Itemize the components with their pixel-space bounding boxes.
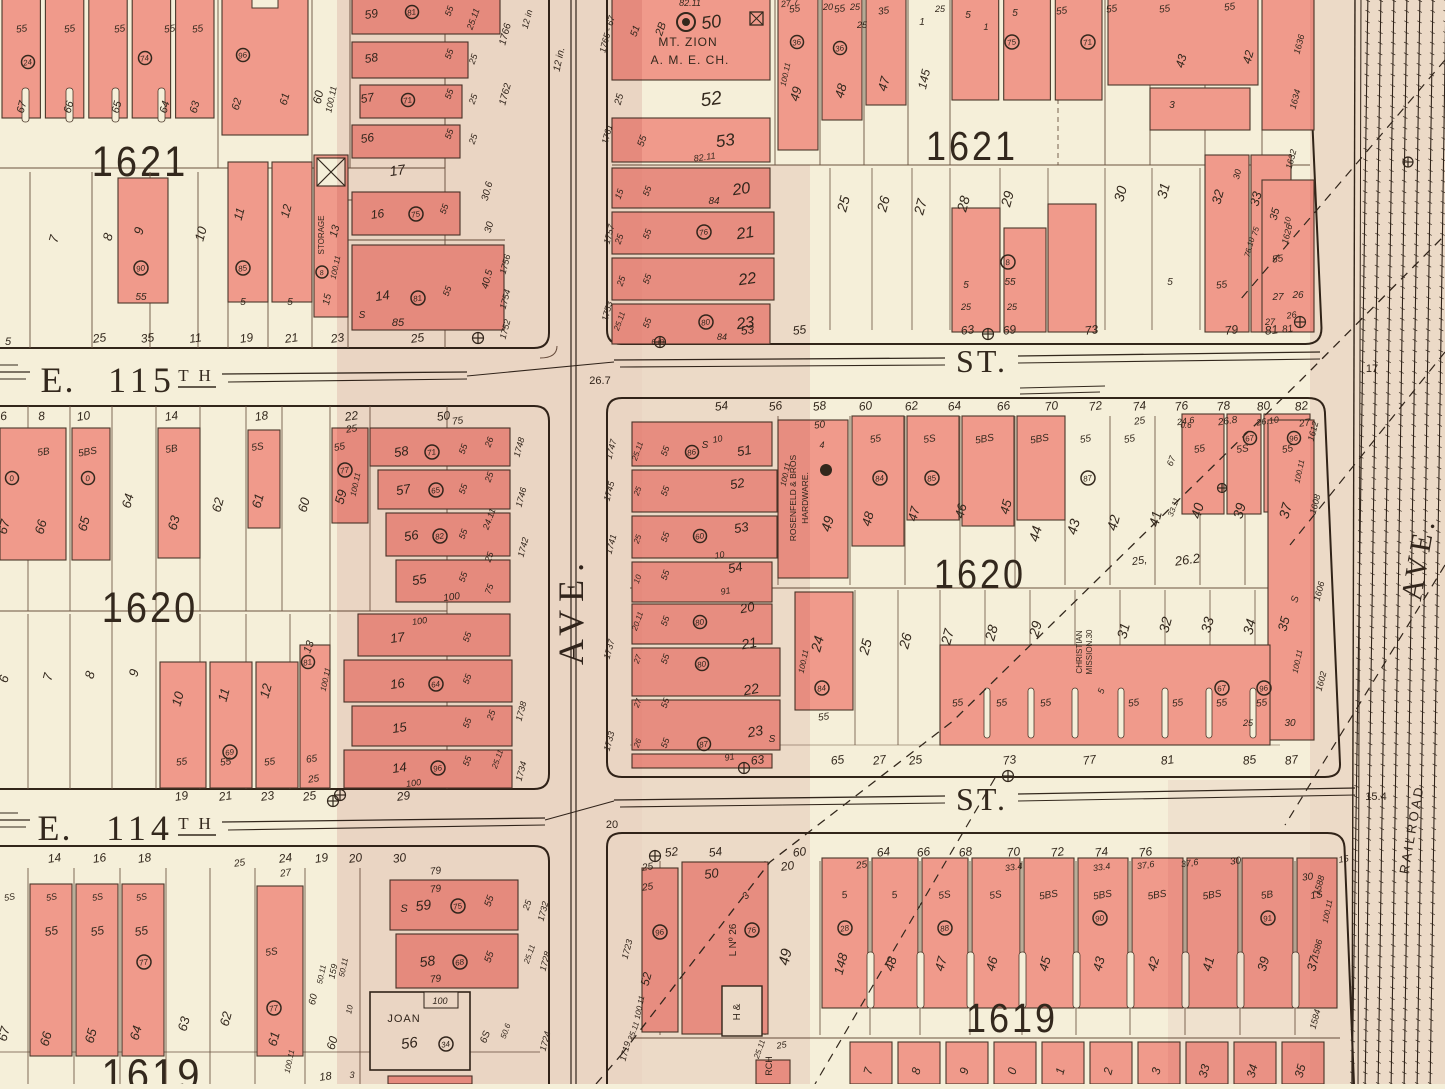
svg-text:58: 58 [812, 398, 827, 414]
svg-text:25: 25 [1242, 718, 1254, 728]
svg-text:16: 16 [92, 850, 107, 866]
svg-text:55: 55 [175, 756, 188, 769]
svg-text:62: 62 [904, 398, 919, 414]
svg-text:25: 25 [1006, 302, 1018, 312]
svg-text:74: 74 [1132, 398, 1147, 414]
svg-text:19: 19 [314, 850, 329, 866]
svg-text:5: 5 [5, 336, 12, 348]
svg-text:27: 27 [1264, 317, 1276, 327]
svg-text:1619: 1619 [966, 996, 1058, 1041]
svg-text:50: 50 [813, 419, 826, 432]
svg-text:5: 5 [963, 280, 969, 291]
svg-text:A. M. E. CH.: A. M. E. CH. [651, 53, 730, 67]
svg-text:5B: 5B [165, 443, 179, 456]
svg-text:81: 81 [1160, 752, 1175, 768]
svg-text:50: 50 [700, 11, 723, 34]
svg-text:ST.: ST. [956, 343, 1008, 379]
svg-text:30: 30 [1284, 718, 1296, 729]
svg-text:73: 73 [1002, 752, 1017, 768]
svg-text:25: 25 [306, 773, 320, 786]
svg-text:1: 1 [919, 17, 925, 28]
svg-text:55: 55 [15, 23, 28, 36]
svg-text:35: 35 [140, 330, 155, 346]
svg-text:115: 115 [108, 360, 176, 400]
svg-text:25: 25 [854, 859, 868, 872]
svg-text:55: 55 [90, 923, 106, 939]
svg-text:72: 72 [1088, 398, 1103, 414]
svg-text:25: 25 [849, 2, 861, 12]
svg-text:64: 64 [947, 398, 962, 414]
svg-text:4: 4 [819, 440, 824, 450]
svg-text:5S: 5S [938, 889, 952, 902]
svg-text:55: 55 [163, 23, 176, 36]
svg-text:52: 52 [699, 88, 723, 112]
svg-text:53: 53 [715, 130, 737, 152]
svg-text:19: 19 [174, 788, 189, 804]
svg-text:25: 25 [960, 302, 972, 312]
svg-text:25: 25 [856, 20, 868, 30]
svg-text:1620: 1620 [102, 583, 199, 632]
svg-text:24: 24 [277, 850, 293, 866]
svg-text:74: 74 [1094, 844, 1109, 860]
svg-text:76: 76 [1174, 398, 1189, 414]
svg-text:5S: 5S [91, 891, 104, 903]
svg-text:23: 23 [259, 788, 275, 804]
svg-text:11: 11 [188, 330, 202, 346]
svg-text:55: 55 [1158, 3, 1171, 16]
svg-text:1620: 1620 [934, 552, 1026, 597]
svg-text:55: 55 [113, 23, 126, 36]
svg-text:55: 55 [833, 3, 846, 16]
svg-text:55: 55 [1171, 697, 1184, 710]
svg-text:66: 66 [996, 398, 1011, 414]
svg-text:55: 55 [1055, 5, 1068, 18]
svg-text:1621: 1621 [926, 124, 1018, 169]
svg-text:55: 55 [63, 23, 76, 36]
svg-text:10: 10 [76, 408, 91, 424]
svg-text:5S: 5S [923, 433, 937, 446]
svg-text:55: 55 [134, 923, 150, 939]
svg-text:25,: 25, [1130, 554, 1148, 568]
svg-text:63: 63 [960, 322, 975, 338]
svg-text:27: 27 [278, 867, 292, 880]
svg-text:5S: 5S [265, 946, 279, 959]
svg-text:55: 55 [263, 756, 276, 769]
svg-text:18: 18 [254, 408, 269, 424]
svg-text:81: 81 [302, 657, 312, 667]
svg-text:55: 55 [1223, 1, 1236, 14]
svg-text:55: 55 [191, 23, 204, 36]
svg-text:64: 64 [876, 844, 891, 860]
svg-text:5S: 5S [251, 441, 265, 454]
svg-text:21: 21 [283, 330, 299, 346]
svg-text:70: 70 [1044, 398, 1059, 414]
svg-text:69: 69 [1002, 322, 1017, 338]
svg-text:60: 60 [858, 398, 873, 414]
svg-text:25: 25 [301, 788, 317, 804]
svg-text:STORAGE: STORAGE [317, 216, 326, 255]
svg-text:25: 25 [934, 4, 946, 14]
svg-text:25: 25 [232, 857, 246, 870]
svg-text:27: 27 [1271, 292, 1284, 303]
svg-text:114: 114 [106, 808, 174, 848]
svg-text:14: 14 [164, 408, 179, 424]
svg-text:55: 55 [1039, 697, 1052, 710]
svg-text:5S: 5S [3, 891, 16, 903]
svg-text:35: 35 [877, 5, 890, 18]
svg-text:65: 65 [305, 753, 318, 766]
svg-text:1619: 1619 [102, 1050, 203, 1084]
svg-text:5: 5 [240, 297, 246, 308]
svg-text:73: 73 [1084, 322, 1099, 338]
svg-text:20: 20 [822, 2, 833, 12]
svg-text:55: 55 [817, 711, 830, 724]
svg-text:85: 85 [1242, 752, 1257, 768]
svg-text:5: 5 [1167, 277, 1173, 288]
svg-text:0.6: 0.6 [1180, 421, 1192, 430]
svg-text:5: 5 [965, 10, 971, 21]
svg-text:55: 55 [1105, 3, 1118, 16]
svg-text:E.: E. [41, 360, 76, 400]
svg-text:25: 25 [1132, 415, 1146, 428]
svg-text:55: 55 [1215, 279, 1228, 292]
svg-text:55: 55 [44, 923, 60, 939]
svg-text:5: 5 [1012, 8, 1018, 19]
svg-text:66: 66 [916, 844, 931, 860]
svg-text:55: 55 [1215, 697, 1228, 710]
svg-text:21: 21 [217, 788, 233, 804]
svg-text:81: 81 [1281, 323, 1294, 335]
svg-text:3: 3 [1169, 100, 1175, 111]
svg-text:82.11: 82.11 [679, 0, 701, 8]
svg-text:5S: 5S [1236, 443, 1250, 456]
svg-text:71: 71 [1082, 37, 1092, 47]
svg-text:1: 1 [983, 22, 988, 32]
svg-text:MISSION.30: MISSION.30 [1085, 629, 1094, 674]
svg-text:72: 72 [1050, 844, 1065, 860]
svg-text:5S: 5S [45, 891, 58, 903]
svg-text:25: 25 [91, 330, 107, 346]
svg-text:5S: 5S [135, 891, 148, 903]
svg-text:55: 55 [219, 756, 232, 769]
svg-text:55: 55 [995, 697, 1008, 710]
svg-text:65: 65 [830, 752, 845, 768]
svg-text:70: 70 [1006, 844, 1021, 860]
svg-text:5B: 5B [37, 446, 51, 459]
svg-text:MT. ZION: MT. ZION [658, 35, 717, 49]
svg-text:82: 82 [1294, 398, 1309, 414]
svg-text:55: 55 [951, 697, 964, 710]
svg-text:55: 55 [1004, 277, 1016, 288]
svg-text:76: 76 [1138, 844, 1153, 860]
svg-text:CHRISTIAN: CHRISTIAN [1075, 630, 1084, 673]
svg-text:68: 68 [958, 844, 973, 860]
svg-text:19: 19 [239, 330, 254, 346]
svg-text:78: 78 [1216, 398, 1231, 414]
svg-text:55: 55 [135, 292, 147, 303]
svg-text:T H: T H [178, 366, 214, 385]
svg-text:18: 18 [137, 850, 152, 866]
svg-text:26: 26 [1291, 290, 1304, 301]
svg-text:55: 55 [1127, 697, 1140, 710]
svg-text:14: 14 [47, 850, 62, 866]
svg-text:E.: E. [38, 808, 73, 848]
svg-text:55: 55 [1255, 697, 1268, 710]
svg-text:79: 79 [1224, 322, 1239, 338]
svg-text:T H: T H [178, 814, 214, 833]
svg-text:5S: 5S [989, 889, 1003, 902]
svg-text:5: 5 [287, 297, 293, 308]
